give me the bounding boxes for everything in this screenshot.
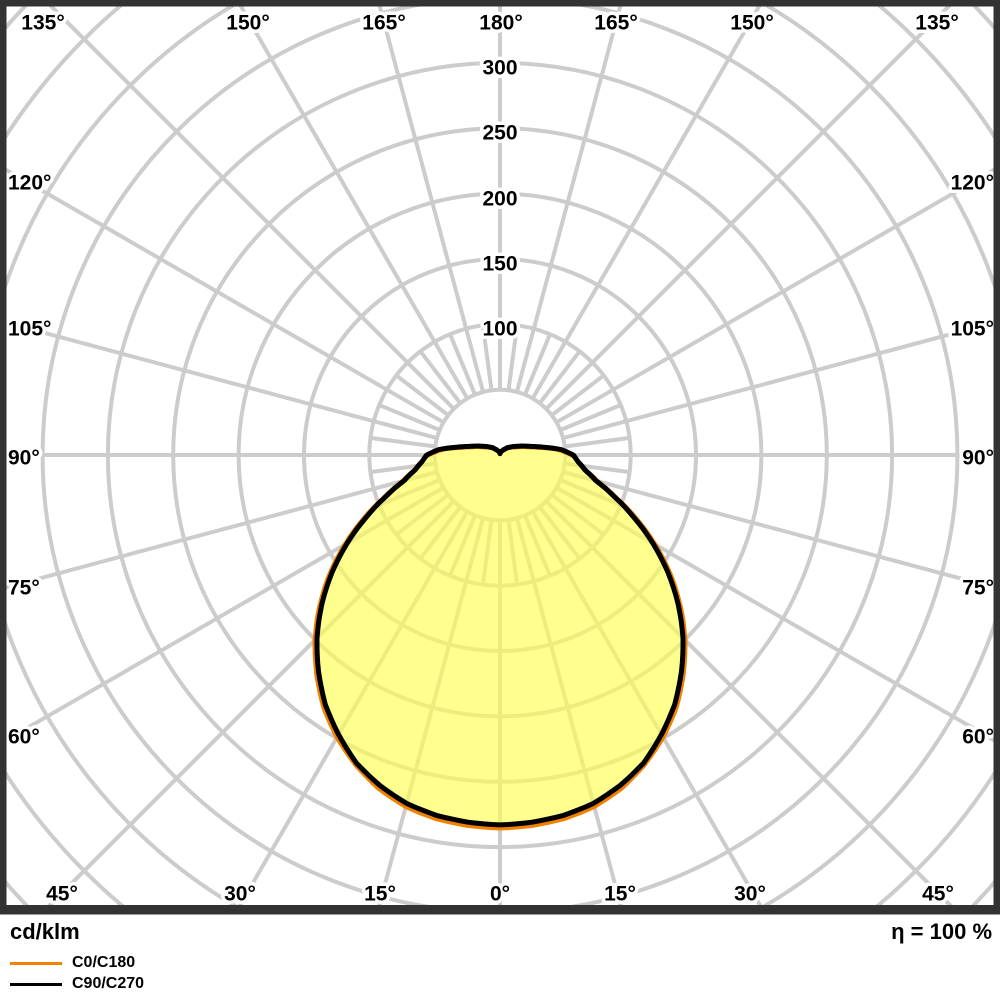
angle-label-left-60°: 60° [8, 726, 40, 749]
legend-item-c0-c180: C0/C180 [10, 955, 135, 971]
radial-tick-label-100: 100 [482, 318, 517, 341]
grid-spoke-255 [0, 274, 437, 438]
angle-label-top-135°: 135° [21, 12, 64, 35]
fill-c90-c270 [317, 446, 683, 825]
radial-tick-label-300: 300 [482, 57, 517, 80]
angle-label-bottom-30°: 30° [224, 883, 256, 906]
angle-label-bottom-15°: 15° [364, 883, 396, 906]
frame-left [0, 0, 7, 915]
grid-spoke-210 [150, 0, 467, 398]
angle-label-right-60°: 60° [962, 726, 994, 749]
grid-spoke-135 [546, 0, 995, 409]
radial-tick-label-250: 250 [482, 122, 517, 145]
legend-label-c0-c180: C0/C180 [72, 955, 135, 971]
grid-spoke-105 [563, 274, 1000, 438]
frame-bottom [0, 905, 1000, 915]
angle-label-bottom-45°: 45° [46, 883, 78, 906]
grid-spoke-150 [533, 0, 850, 398]
photometric-diagram-page: 100150200250300135°150°165°180°165°150°1… [0, 0, 1000, 1000]
angle-label-top-180°: 180° [479, 12, 522, 35]
frame-right [994, 0, 1000, 915]
unit-label: cd/klm [10, 921, 80, 943]
angle-label-right-90°: 90° [962, 447, 994, 470]
grid-fine-spoke-262.5 [370, 438, 435, 447]
legend-swatch-c90-c270-line [10, 983, 62, 986]
polar-photometric-chart: 100150200250300135°150°165°180°165°150°1… [0, 0, 1000, 1000]
frame-top [0, 0, 1000, 7]
plot-area [0, 0, 1000, 1000]
angle-label-top-150°: 150° [226, 12, 269, 35]
angle-label-top-150°: 150° [730, 12, 773, 35]
angle-label-top-165°: 165° [594, 12, 637, 35]
angle-label-bottom-30°: 30° [734, 883, 766, 906]
efficiency-label: η = 100 % [891, 921, 992, 943]
angle-label-left-120°: 120° [8, 172, 51, 195]
angle-label-right-75°: 75° [962, 577, 994, 600]
intensity-fill [314, 446, 686, 829]
grid-fine-spoke-97.5 [565, 438, 630, 447]
angle-label-bottom-0°: 0° [490, 883, 510, 906]
angle-label-top-165°: 165° [362, 12, 405, 35]
angle-label-bottom-45°: 45° [922, 883, 954, 906]
radial-tick-label-150: 150 [482, 253, 517, 276]
radial-tick-label-200: 200 [482, 188, 517, 211]
legend-item-c90-c270: C90/C270 [10, 976, 144, 992]
legend-label-c90-c270: C90/C270 [72, 976, 144, 992]
angle-label-right-120°: 120° [951, 172, 994, 195]
angle-label-left-75°: 75° [8, 577, 40, 600]
angle-label-right-105°: 105° [951, 318, 994, 341]
angle-label-left-90°: 90° [8, 447, 40, 470]
angle-label-left-105°: 105° [8, 318, 51, 341]
legend-swatch-c0-c180-line [10, 962, 62, 965]
angle-label-bottom-15°: 15° [604, 883, 636, 906]
grid-spoke-225 [5, 0, 454, 409]
angle-label-top-135°: 135° [915, 12, 958, 35]
